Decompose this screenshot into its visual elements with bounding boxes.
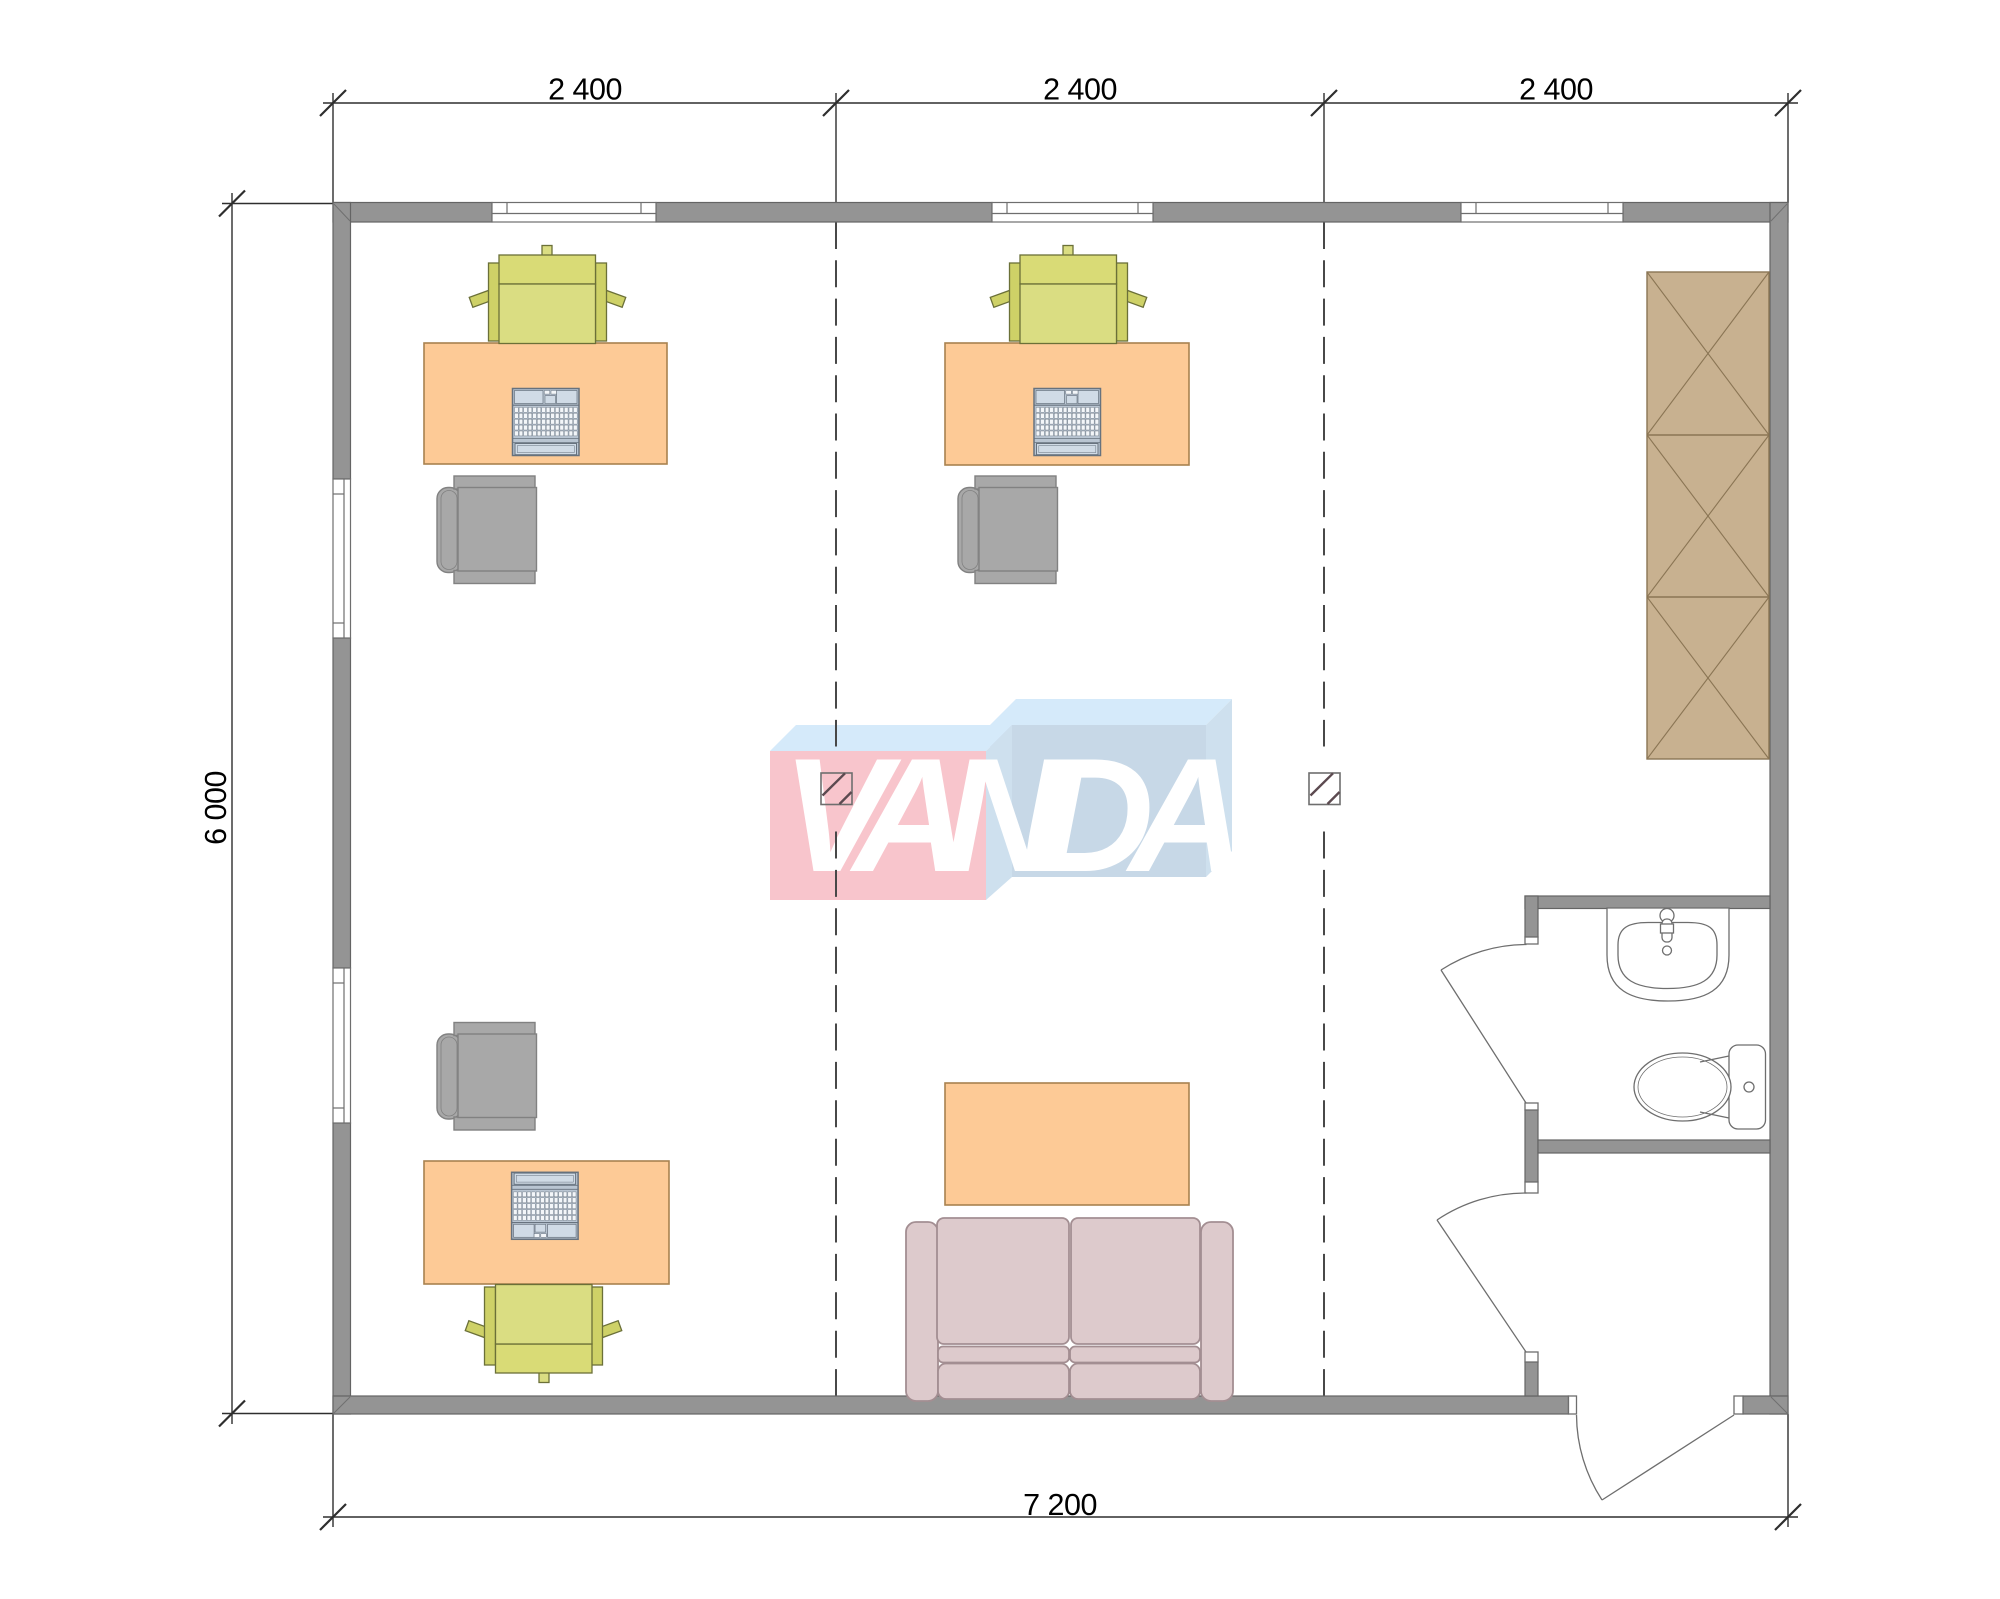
svg-text:2 400: 2 400 xyxy=(548,73,622,107)
svg-text:2 400: 2 400 xyxy=(1043,73,1117,107)
svg-text:2 400: 2 400 xyxy=(1519,73,1593,107)
svg-text:VANDA: VANDA xyxy=(782,725,1235,906)
svg-text:6 000: 6 000 xyxy=(199,771,233,845)
svg-text:7 200: 7 200 xyxy=(1023,1488,1097,1522)
